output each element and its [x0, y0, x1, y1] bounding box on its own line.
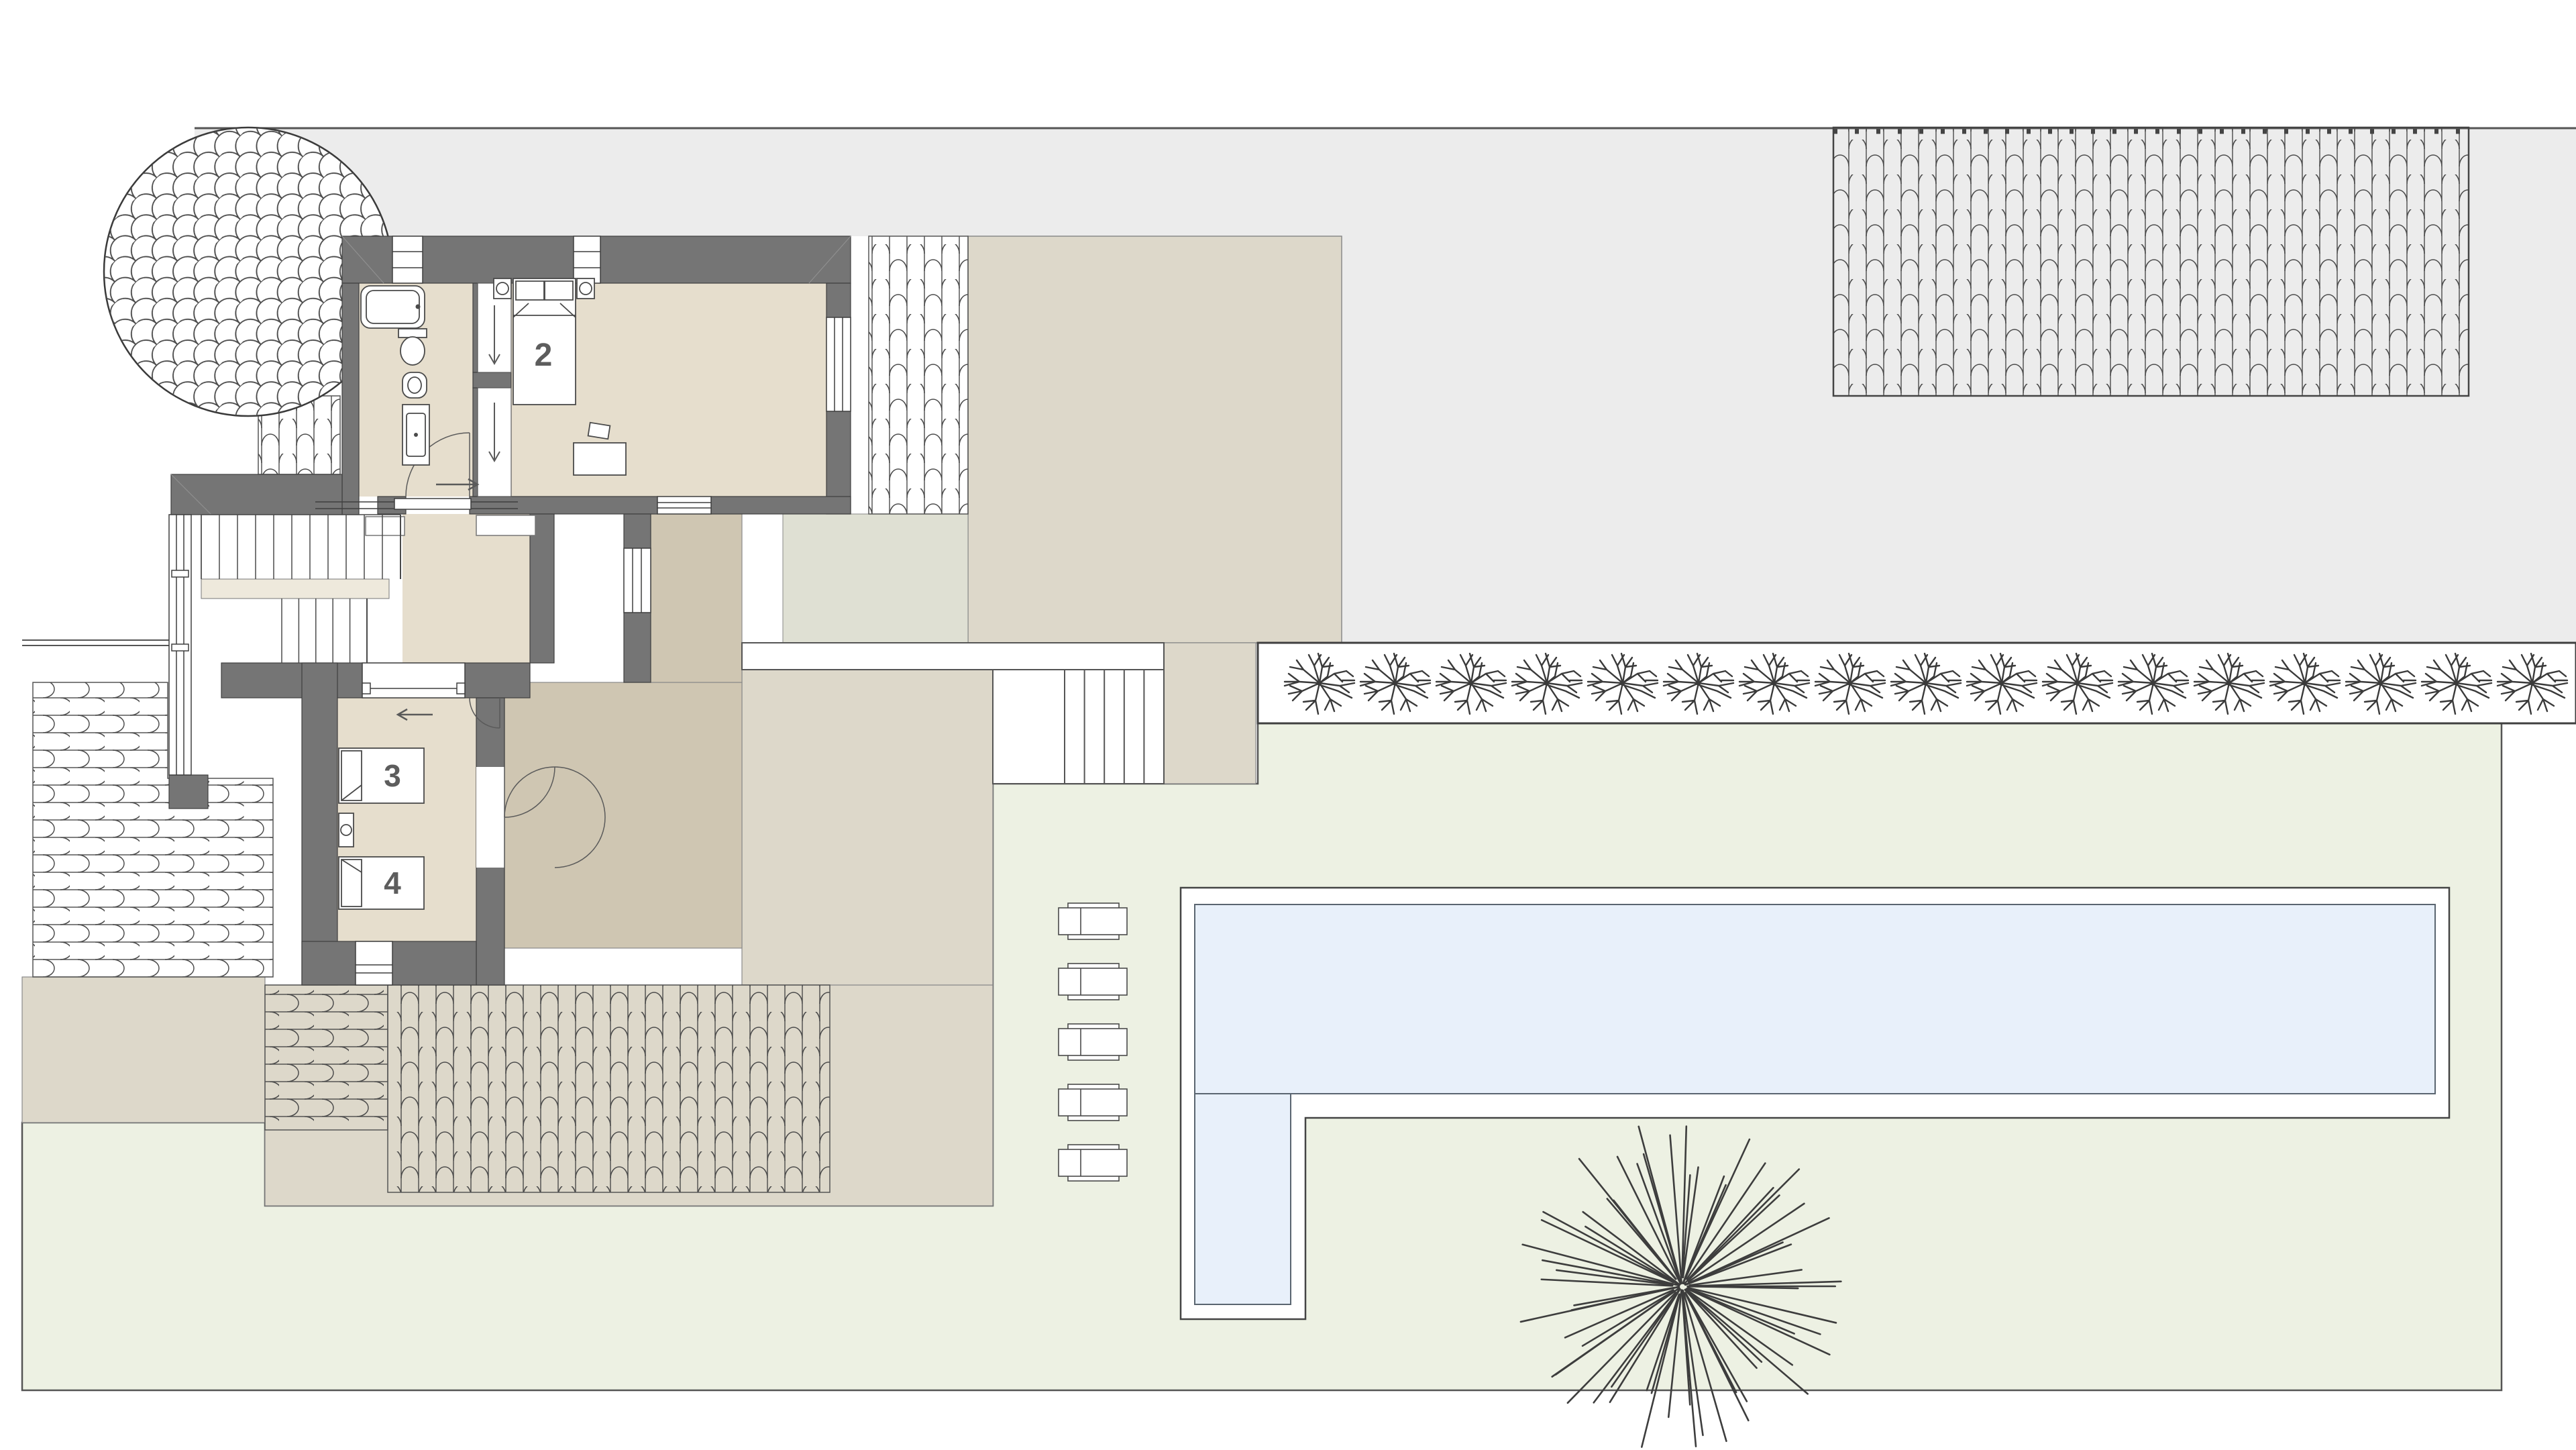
bed-icon — [339, 748, 424, 803]
sun-lounger-icon — [1059, 964, 1127, 1000]
sun-lounger-icon — [1059, 1024, 1127, 1060]
site-floor-plan: 2 3 4 /* generated decorations are appen… — [0, 0, 2576, 1450]
sun-lounger-icon — [1059, 1084, 1127, 1121]
kids-room-south-window — [356, 941, 392, 985]
entry-path — [22, 640, 169, 645]
room-label-3: 3 — [384, 758, 401, 793]
hedge-row — [1258, 643, 2576, 723]
entry-mat-outside — [476, 515, 535, 535]
toilet-icon — [398, 329, 427, 365]
floor-plan-page: 2 3 4 /* generated decorations are appen… — [0, 0, 2576, 1450]
entry-mat-inside — [366, 517, 405, 535]
nightstand-icon — [577, 278, 594, 299]
bath-window — [392, 236, 423, 283]
room-label-2: 2 — [535, 338, 553, 373]
sun-lounger-icon — [1059, 1145, 1127, 1181]
east-terrace — [968, 236, 1342, 643]
bed-icon — [339, 857, 424, 909]
bathtub-icon — [361, 286, 425, 328]
kids-room-north-window — [362, 663, 465, 698]
wardrobe — [478, 283, 511, 497]
nightstand-icon — [494, 278, 511, 299]
upper-terrace-block — [783, 514, 968, 643]
sun-lounger-icon — [1059, 903, 1127, 939]
south-roof — [388, 985, 830, 1192]
nightstand-icon — [339, 813, 354, 847]
vanity-sink-icon — [402, 405, 429, 465]
bidet-icon — [402, 372, 427, 398]
south-wall-window — [657, 497, 711, 514]
wing-wall-window — [624, 548, 651, 613]
annex-west-glazing — [169, 515, 191, 775]
bedroom-2-east-window — [826, 317, 851, 411]
room-label-4: 4 — [384, 866, 401, 900]
northeast-roof — [869, 236, 968, 514]
outbuilding-roof — [1833, 127, 2469, 396]
hall-floor — [402, 514, 530, 663]
bedroom-2-north-window — [574, 236, 600, 283]
